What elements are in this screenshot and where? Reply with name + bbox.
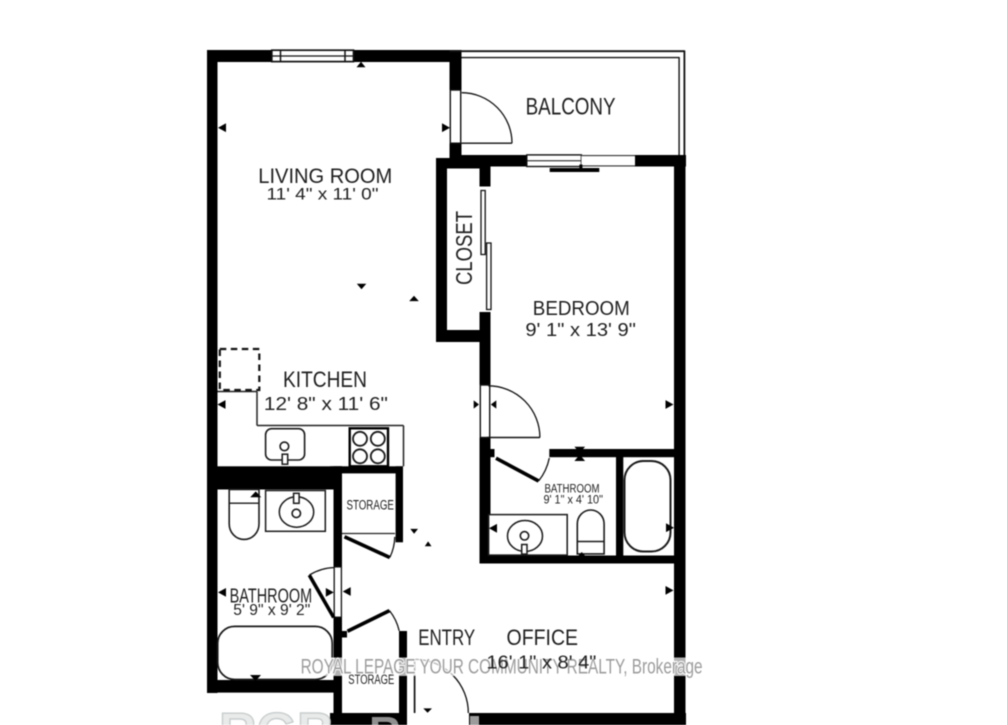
svg-text:OFFICE: OFFICE <box>507 625 579 650</box>
svg-text:12' 8" x 11' 6": 12' 8" x 11' 6" <box>264 393 388 414</box>
svg-text:9' 1" x 4' 10": 9' 1" x 4' 10" <box>543 495 603 507</box>
svg-text:9' 1" x 13' 9": 9' 1" x 13' 9" <box>525 319 636 340</box>
svg-text:BALCONY: BALCONY <box>526 94 616 121</box>
svg-text:CLOSET: CLOSET <box>451 211 477 285</box>
svg-text:5' 9" x 9' 2": 5' 9" x 9' 2" <box>233 602 310 619</box>
svg-text:ENTRY: ENTRY <box>418 625 475 650</box>
svg-text:RGB: RGB <box>219 703 335 725</box>
svg-text:16' 1" x 8' 4": 16' 1" x 8' 4" <box>486 652 596 673</box>
svg-text:STORAGE: STORAGE <box>346 498 394 513</box>
svg-text:R: R <box>369 708 401 725</box>
svg-text:11' 4" x 11' 0": 11' 4" x 11' 0" <box>267 185 379 204</box>
svg-text:BEDROOM: BEDROOM <box>533 298 630 320</box>
svg-text:KITCHEN: KITCHEN <box>283 367 367 392</box>
